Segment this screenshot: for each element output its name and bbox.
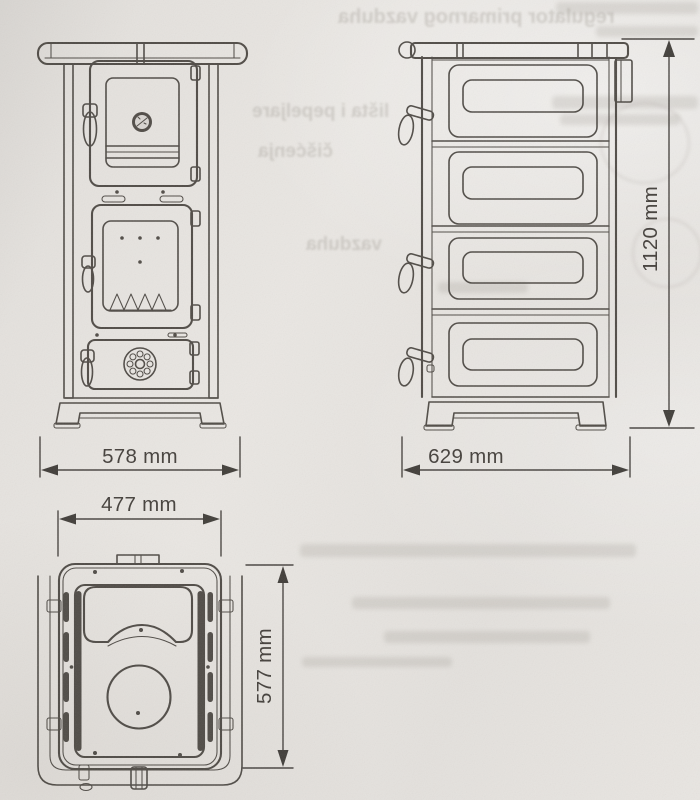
technical-drawing-svg: 578 mm xyxy=(0,0,700,800)
scan-noise-overlay xyxy=(0,0,700,800)
scanned-manual-page: regulator primarnog vazduha lišta i pepe… xyxy=(0,0,700,800)
